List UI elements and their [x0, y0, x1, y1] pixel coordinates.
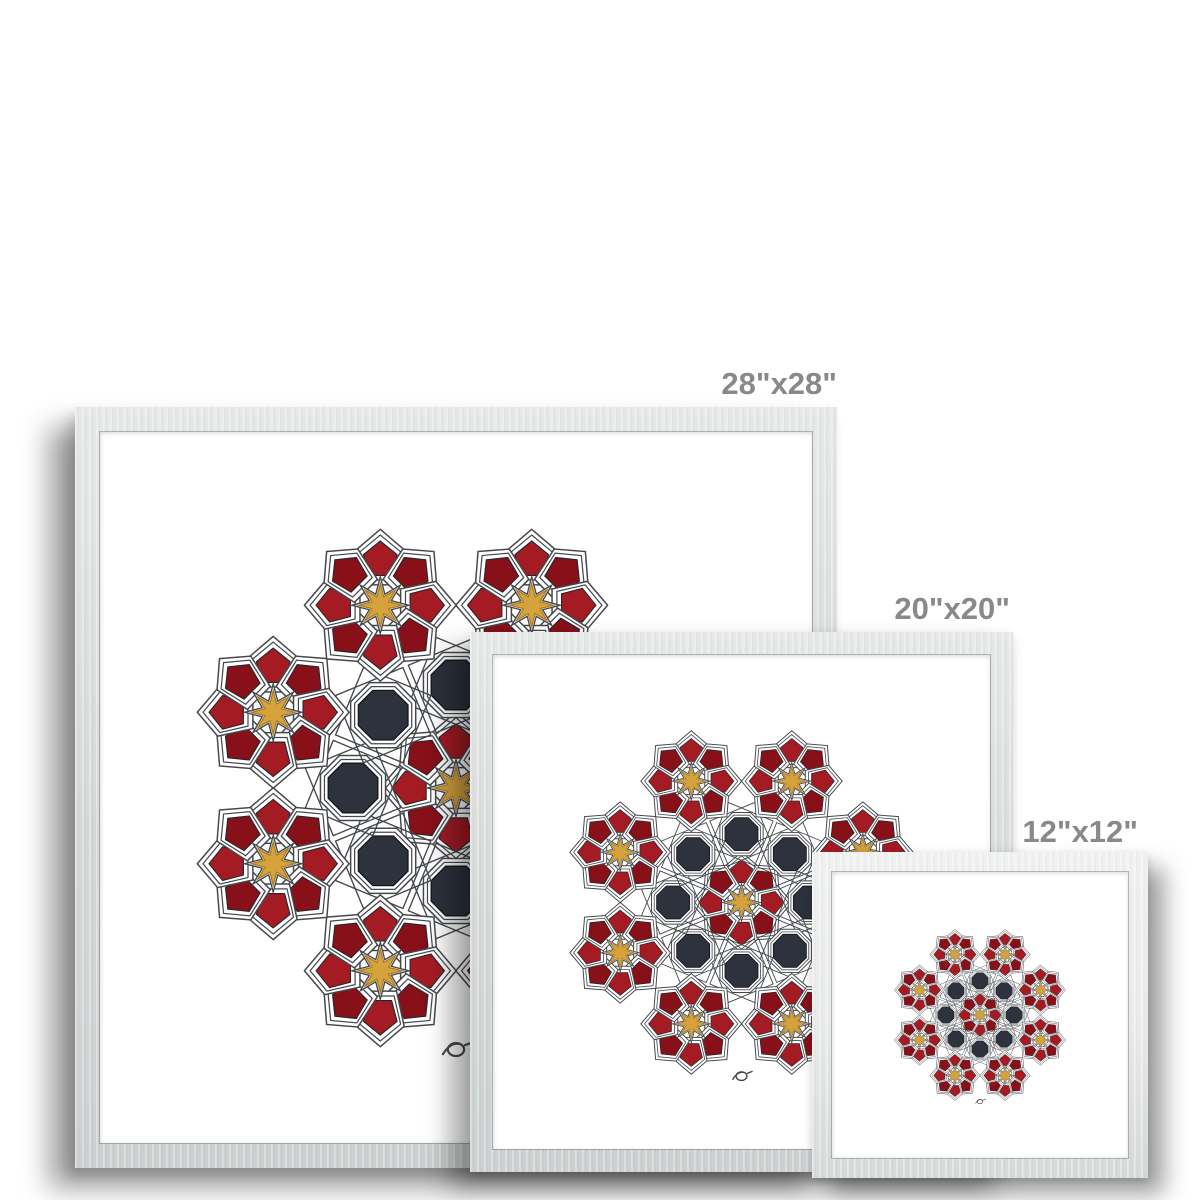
- size-label-20x20: 20"x20": [894, 593, 1010, 624]
- rosette-artwork-12x12: [884, 919, 1076, 1111]
- size-label-28x28: 28"x28": [721, 368, 837, 399]
- framed-print-12x12[interactable]: [812, 852, 1148, 1178]
- mat-12x12: [832, 872, 1128, 1158]
- size-label-12x12: 12"x12": [1022, 816, 1138, 847]
- product-size-comparison: 28"x28" 20"x20" 12"x12": [0, 0, 1200, 1200]
